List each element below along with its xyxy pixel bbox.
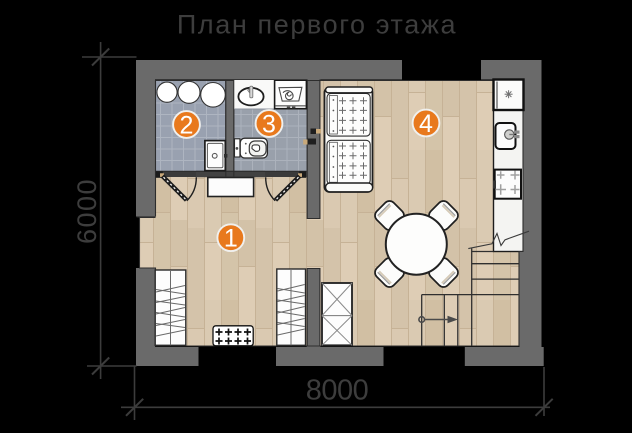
svg-text:3: 3 <box>262 111 276 139</box>
svg-text:План первого этажа: План первого этажа <box>177 10 457 40</box>
svg-text:2: 2 <box>180 112 194 140</box>
svg-text:8000: 8000 <box>306 375 369 407</box>
svg-text:4: 4 <box>419 110 433 138</box>
svg-text:1: 1 <box>224 225 238 253</box>
svg-text:6000: 6000 <box>72 178 102 244</box>
